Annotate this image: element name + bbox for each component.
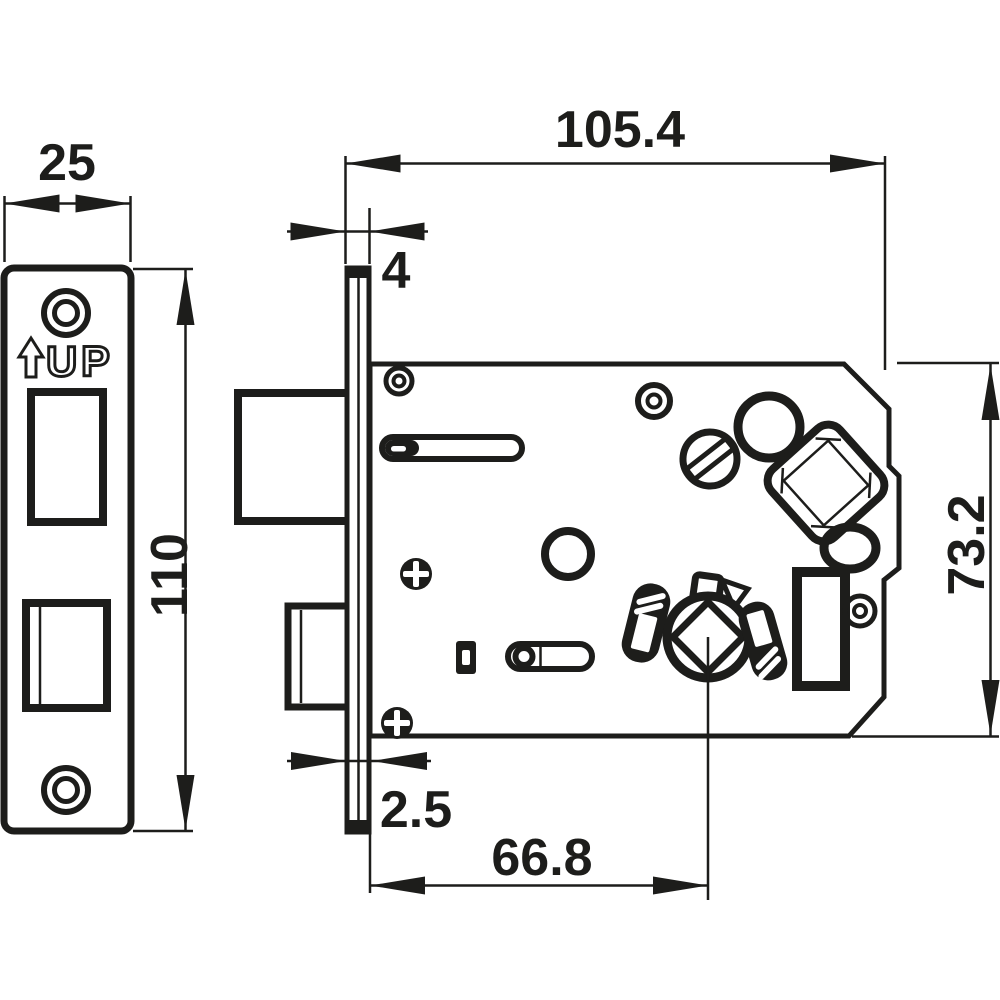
vertical-rect-hole	[797, 572, 845, 686]
keyhole-slot	[508, 644, 592, 669]
dim-label-2-5: 2.5	[380, 781, 452, 839]
arrowhead-right-icon	[830, 155, 885, 173]
dim-label-110: 110	[141, 533, 199, 617]
arrowhead-right-icon	[291, 223, 346, 241]
arrowhead-left-icon	[5, 195, 60, 213]
lock-drawing: UP 25 110	[0, 0, 1000, 1000]
arrowhead-right-icon	[653, 877, 708, 895]
deadbolt	[288, 606, 350, 707]
front-view: UP	[4, 268, 131, 831]
dim-label-73-2: 73.2	[938, 494, 996, 595]
arrowhead-left-icon	[372, 752, 427, 770]
dim-label-25: 25	[38, 134, 96, 192]
dim-label-4: 4	[382, 242, 411, 300]
arrowhead-down-icon	[177, 775, 195, 830]
phillips-screw-icon	[400, 558, 432, 590]
latch-opening	[31, 392, 103, 522]
arrowhead-left-icon	[346, 155, 401, 173]
deadbolt-opening	[26, 603, 107, 708]
technical-drawing-canvas: UP 25 110	[0, 0, 1000, 1000]
arrowhead-left-icon	[370, 223, 425, 241]
arrowhead-up-icon	[177, 270, 195, 325]
arrowhead-down-icon	[982, 680, 1000, 735]
side-view	[238, 266, 899, 832]
dim-case-depth: 105.4	[346, 101, 886, 370]
upper-slot	[382, 437, 522, 459]
phillips-screw-icon	[381, 707, 413, 739]
dim-label-66-8: 66.8	[491, 829, 592, 887]
dim-faceplate-width: 25	[5, 134, 131, 262]
arrowhead-right-icon	[291, 752, 346, 770]
faceplate-edge	[345, 266, 371, 832]
up-label: UP	[46, 338, 114, 386]
arrowhead-left-icon	[370, 877, 425, 895]
dim-faceplate-height: 110	[133, 269, 199, 831]
arrowhead-up-icon	[982, 365, 1000, 420]
small-rect-hole	[456, 641, 476, 674]
dim-label-105-4: 105.4	[555, 101, 685, 159]
arrowhead-right-icon	[76, 195, 131, 213]
latch-bolt	[238, 393, 350, 521]
